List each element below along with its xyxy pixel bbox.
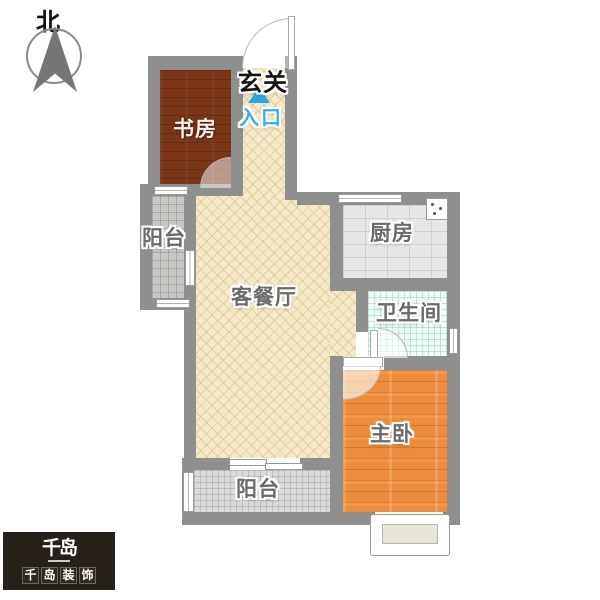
floorplan: 北 (0, 0, 600, 600)
kitchen-label: 厨房 (370, 217, 414, 247)
balcony-left-label: 阳台 (142, 222, 186, 252)
wall-balcony-bottom-bottom (182, 512, 335, 525)
wall-bedroom-top (384, 356, 460, 370)
logo-char: 装 (60, 567, 77, 584)
logo-char: 饰 (79, 567, 96, 584)
living-dining-label: 客餐厅 (231, 281, 297, 311)
company-logo: 千岛 千 岛 装 饰 (3, 532, 115, 590)
living-left-window (185, 250, 195, 286)
balcony-sliding-door (229, 459, 267, 466)
logo-char: 千 (22, 567, 39, 584)
wall-kitchen-left (330, 192, 343, 291)
logo-char: 岛 (41, 567, 58, 584)
bathroom-window (449, 328, 458, 354)
kitchen-window (338, 194, 402, 203)
living-dining-floor (196, 196, 330, 458)
entry-hall-label: 玄关 (238, 63, 288, 98)
balcony-bottom-label: 阳台 (236, 473, 280, 503)
bedroom-bay-window-inner (382, 524, 438, 544)
wall-bedroom-bottom-left (335, 512, 375, 525)
balcony-sliding-door (265, 463, 303, 470)
logo-mark: 千岛 (42, 539, 76, 558)
bathroom-label: 卫生间 (376, 297, 442, 327)
balcony-left-window (156, 299, 190, 308)
balcony-bottom-window (183, 472, 194, 512)
study-balcony-window (154, 186, 188, 195)
logo-name: 千 岛 装 饰 (22, 567, 96, 584)
wall-bathroom-left (356, 291, 368, 332)
wall-study-left (148, 56, 160, 196)
wall-bedroom-left (330, 356, 343, 525)
study-label: 书房 (173, 113, 217, 143)
master-bedroom-label: 主卧 (370, 418, 414, 448)
entrance-door-arc (242, 18, 292, 68)
living-extension-floor (330, 291, 356, 358)
logo-underline (48, 560, 70, 562)
wall-study-top (148, 56, 243, 70)
bathroom-door-leaf (370, 330, 378, 358)
entrance-door-leaf (288, 16, 295, 70)
kitchen-sink-icon (426, 198, 448, 220)
wall-living-bottom-right (300, 458, 343, 470)
wall-kitchen-bottom (330, 278, 460, 291)
entry-label: 入口 (239, 102, 283, 131)
